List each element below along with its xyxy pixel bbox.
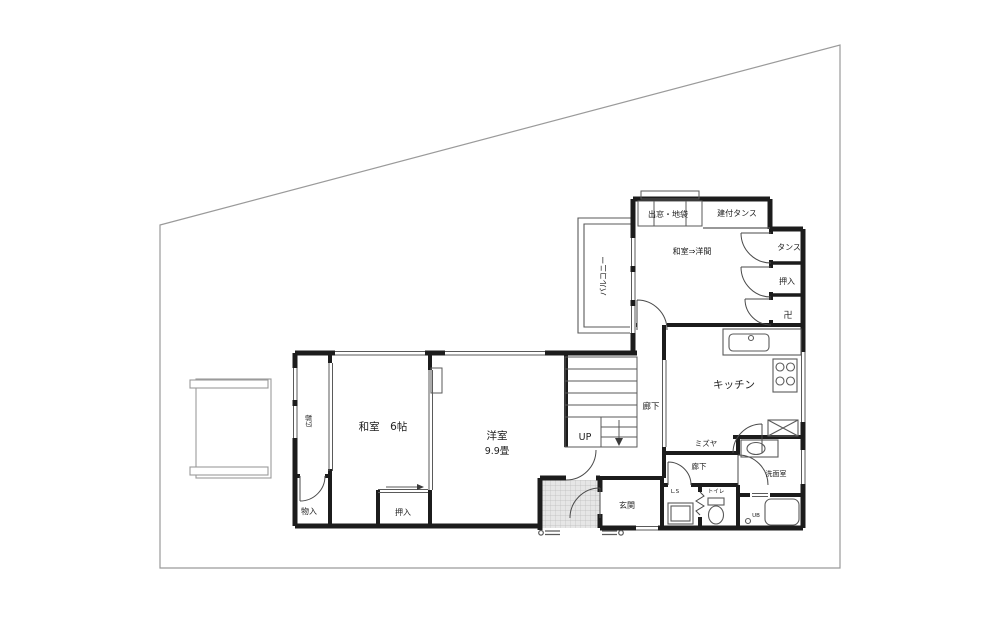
entrance-step-marks — [539, 531, 624, 536]
refrigerator-icon — [768, 420, 798, 436]
label-tansu: タンス — [777, 243, 801, 252]
label-hallway-main: 廊下 — [642, 401, 660, 412]
label-closet-lower: 押入 — [395, 507, 411, 517]
washer-box-icon — [668, 503, 693, 524]
toilet-icon — [708, 498, 724, 524]
carport-outline — [190, 379, 271, 478]
bathtub-icon — [746, 499, 800, 525]
label-engawa: 広縁 — [304, 414, 313, 428]
stairs-arrow-icon — [615, 438, 623, 446]
label-western-room-size: 9.9畳 — [485, 446, 510, 457]
label-entrance: 玄関 — [619, 500, 635, 510]
room-labels: 出窓・地袋 建付タンス 和室⇒洋間 タンス 押入 卍 バルコニー キッチン ミズ… — [301, 208, 801, 519]
stove-icon — [773, 359, 797, 392]
label-bay-window: 出窓・地袋 — [648, 209, 688, 219]
label-butsudan: 卍 — [783, 310, 792, 321]
label-western-room: 洋室 — [487, 429, 508, 442]
label-stairs-up: UP — [579, 432, 592, 443]
exterior-walls — [295, 199, 803, 530]
label-converted-room: 和室⇒洋間 — [673, 246, 712, 256]
bay-window-outline — [638, 191, 702, 226]
label-japanese-room: 和室 6帖 — [359, 420, 408, 433]
label-washroom: 洗面室 — [766, 469, 787, 478]
kitchen-sink-icon — [723, 329, 801, 355]
entrance-porch-hatch — [542, 480, 600, 528]
label-toilet: トイレ — [708, 489, 725, 495]
vanity-sink-icon — [741, 440, 778, 457]
label-unit-bath: UB — [752, 513, 760, 519]
label-closet-upper: 押入 — [779, 276, 795, 286]
label-hallway-rear: 廊下 — [692, 461, 707, 471]
staircase — [565, 357, 637, 447]
accordion-door — [696, 492, 704, 515]
label-built-in-tansu: 建付タンス — [717, 208, 757, 218]
label-kitchen: キッチン — [713, 379, 755, 391]
floor-plan-canvas: 出窓・地袋 建付タンス 和室⇒洋間 タンス 押入 卍 バルコニー キッチン ミズ… — [0, 0, 1000, 622]
label-storage: 物入 — [301, 506, 317, 516]
door-arcs — [300, 233, 771, 518]
label-balcony: バルコニー — [599, 256, 608, 296]
label-linen-storage: L.S — [671, 489, 680, 495]
floor-plan-drawing: 出窓・地袋 建付タンス 和室⇒洋間 タンス 押入 卍 バルコニー キッチン ミズ… — [0, 0, 1000, 622]
label-mizuya: ミズヤ — [695, 438, 718, 448]
